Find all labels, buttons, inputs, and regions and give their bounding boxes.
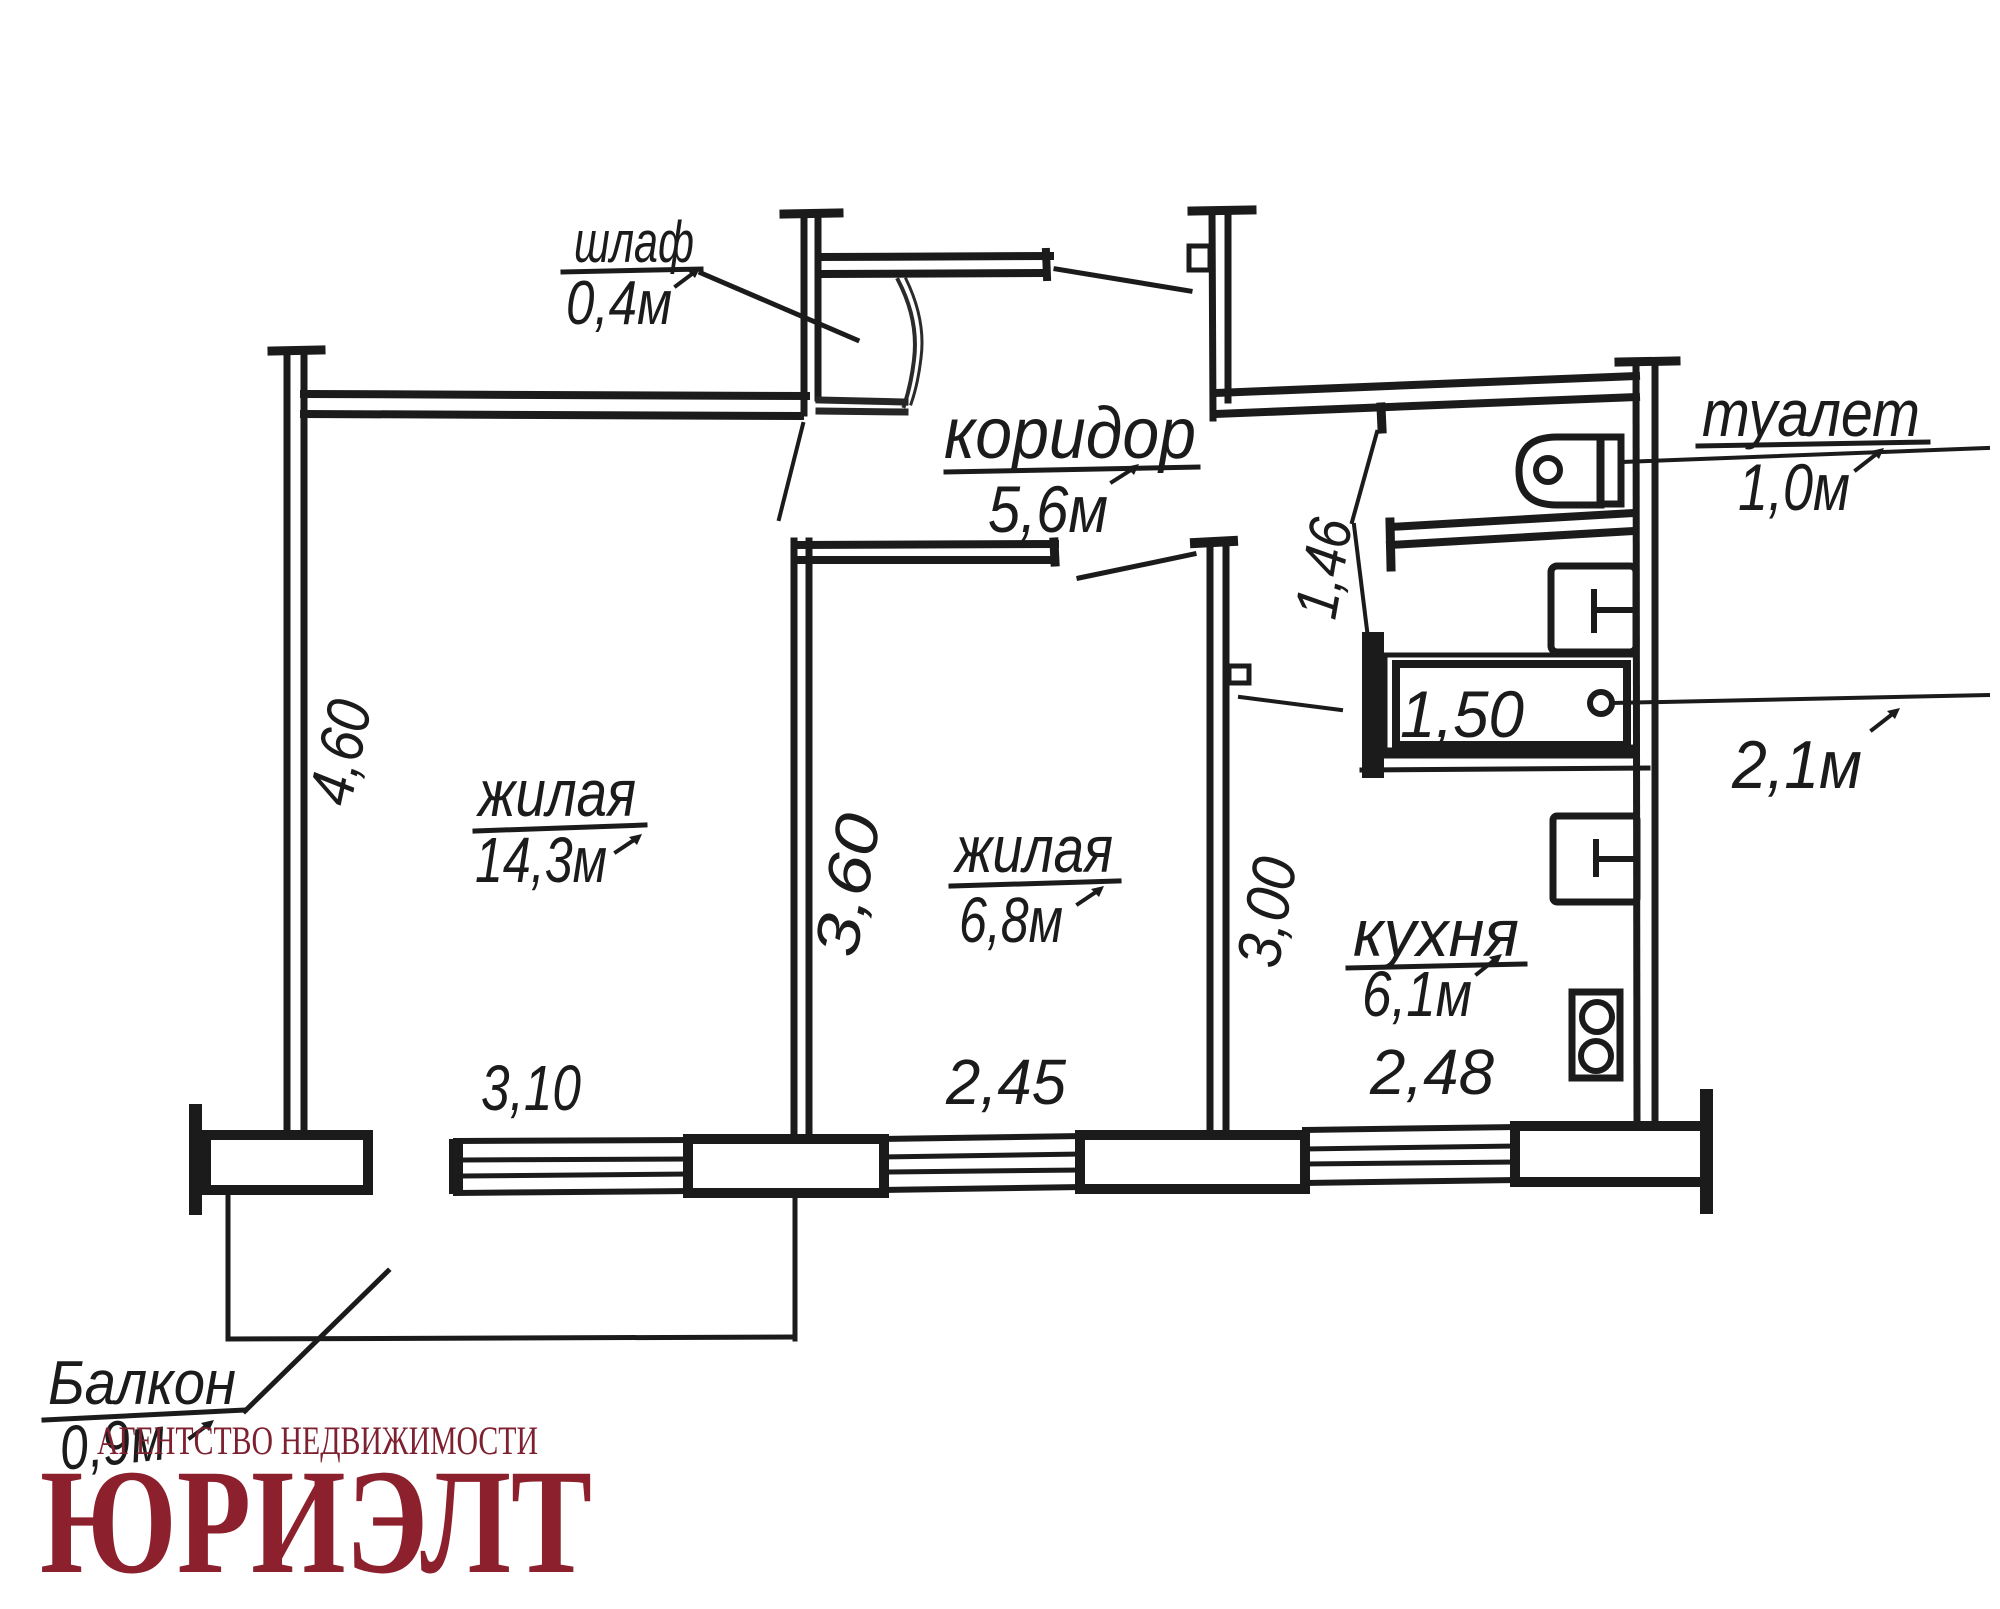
svg-text:3,60: 3,60	[802, 809, 895, 962]
svg-text:1,46: 1,46	[1282, 513, 1365, 624]
svg-text:2,45: 2,45	[945, 1046, 1066, 1118]
svg-text:туалет: туалет	[1702, 376, 1920, 450]
svg-text:жилая: жилая	[476, 756, 636, 830]
svg-text:5,6м: 5,6м	[988, 472, 1108, 546]
svg-text:2,1м: 2,1м	[1731, 727, 1862, 803]
svg-text:6,1м: 6,1м	[1362, 958, 1472, 1030]
svg-text:коридор: коридор	[944, 394, 1196, 474]
svg-text:1,50: 1,50	[1400, 677, 1524, 751]
svg-text:ЮРИЭЛТ: ЮРИЭЛТ	[40, 1439, 592, 1605]
svg-text:0,4м: 0,4м	[566, 269, 672, 338]
svg-text:4,60: 4,60	[296, 694, 385, 811]
svg-text:6,8м: 6,8м	[959, 884, 1063, 956]
svg-text:3,10: 3,10	[481, 1052, 581, 1124]
svg-text:3,00: 3,00	[1224, 852, 1311, 972]
svg-text:шлаф: шлаф	[574, 210, 694, 275]
svg-text:1,0м: 1,0м	[1738, 450, 1850, 524]
svg-text:14,3м: 14,3м	[475, 824, 607, 896]
svg-text:2,48: 2,48	[1369, 1036, 1494, 1108]
svg-text:жилая: жилая	[953, 812, 1113, 886]
